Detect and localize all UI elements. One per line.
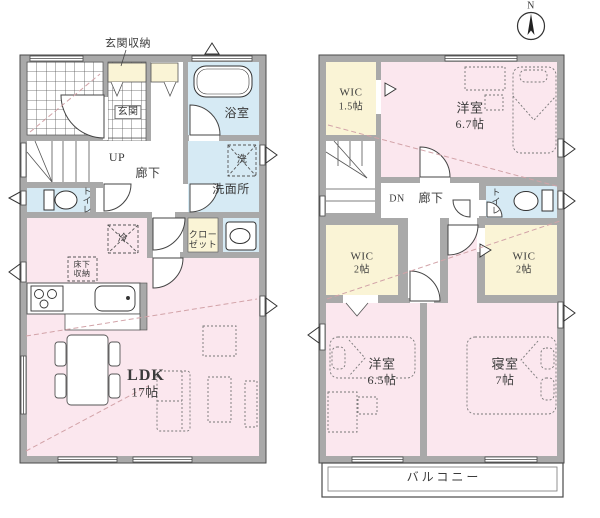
vanity-sink — [226, 222, 256, 250]
ldk-size-label: 17帖 — [131, 386, 159, 401]
staircase-2f — [326, 141, 375, 213]
entrance-label: 玄関 — [115, 105, 142, 119]
western-room-65-label: 洋室 — [368, 358, 395, 373]
entrance-storage-label: 玄関収納 — [105, 38, 151, 51]
up-label: UP — [109, 151, 125, 165]
fridge-label: 冷 — [118, 233, 129, 245]
wic-right-size-label: 2帖 — [516, 264, 532, 276]
bedroom-label: 寝室 — [491, 358, 518, 373]
toilet-fixture-2f — [514, 190, 553, 211]
shoe-cabinet — [108, 63, 146, 82]
wic-right-label: WIC — [513, 251, 536, 264]
main-bedroom — [427, 303, 557, 456]
closet-label: クロー ゼット — [189, 230, 218, 251]
hallway-1f-label: 廊下 — [135, 167, 160, 181]
floor-plan-page: 玄関収納 玄関 浴室 UP 廊下 洗 冷 洗面所 トイレ クロー ゼット 床下 … — [0, 0, 600, 518]
bathtub — [194, 66, 252, 97]
stove — [31, 286, 63, 311]
western-room-67-size-label: 6.7帖 — [455, 118, 484, 132]
toilet-2f-label: トイレ — [491, 188, 500, 215]
western-room-65-size-label: 6.5帖 — [367, 374, 396, 388]
ldk-label: LDK — [127, 367, 165, 385]
north-label: N — [527, 0, 535, 12]
down-label: DN — [389, 193, 404, 205]
bathroom-label: 浴室 — [224, 107, 249, 121]
wic-left-size-label: 2帖 — [354, 264, 370, 276]
balcony-label: バルコニー — [407, 471, 482, 485]
washroom-label: 洗面所 — [212, 183, 250, 197]
kitchen-sink — [95, 286, 135, 311]
wic-15-label: WIC — [340, 87, 363, 100]
washer-label: 洗 — [237, 154, 248, 166]
western-room-67-label: 洋室 — [456, 102, 483, 117]
toilet-1f-label: トイレ — [82, 187, 91, 214]
staircase-1f — [27, 141, 103, 182]
wic-left-label: WIC — [351, 251, 374, 264]
toilet-fixture-1f — [44, 190, 77, 210]
underfloor-storage-label: 床下 収納 — [74, 260, 91, 278]
compass-icon — [518, 13, 545, 40]
hallway-2f-label: 廊下 — [418, 192, 443, 206]
bedroom-size-label: 7帖 — [495, 374, 514, 388]
shoe-cabinet — [151, 63, 178, 82]
wic-15-size-label: 1.5帖 — [339, 101, 364, 113]
